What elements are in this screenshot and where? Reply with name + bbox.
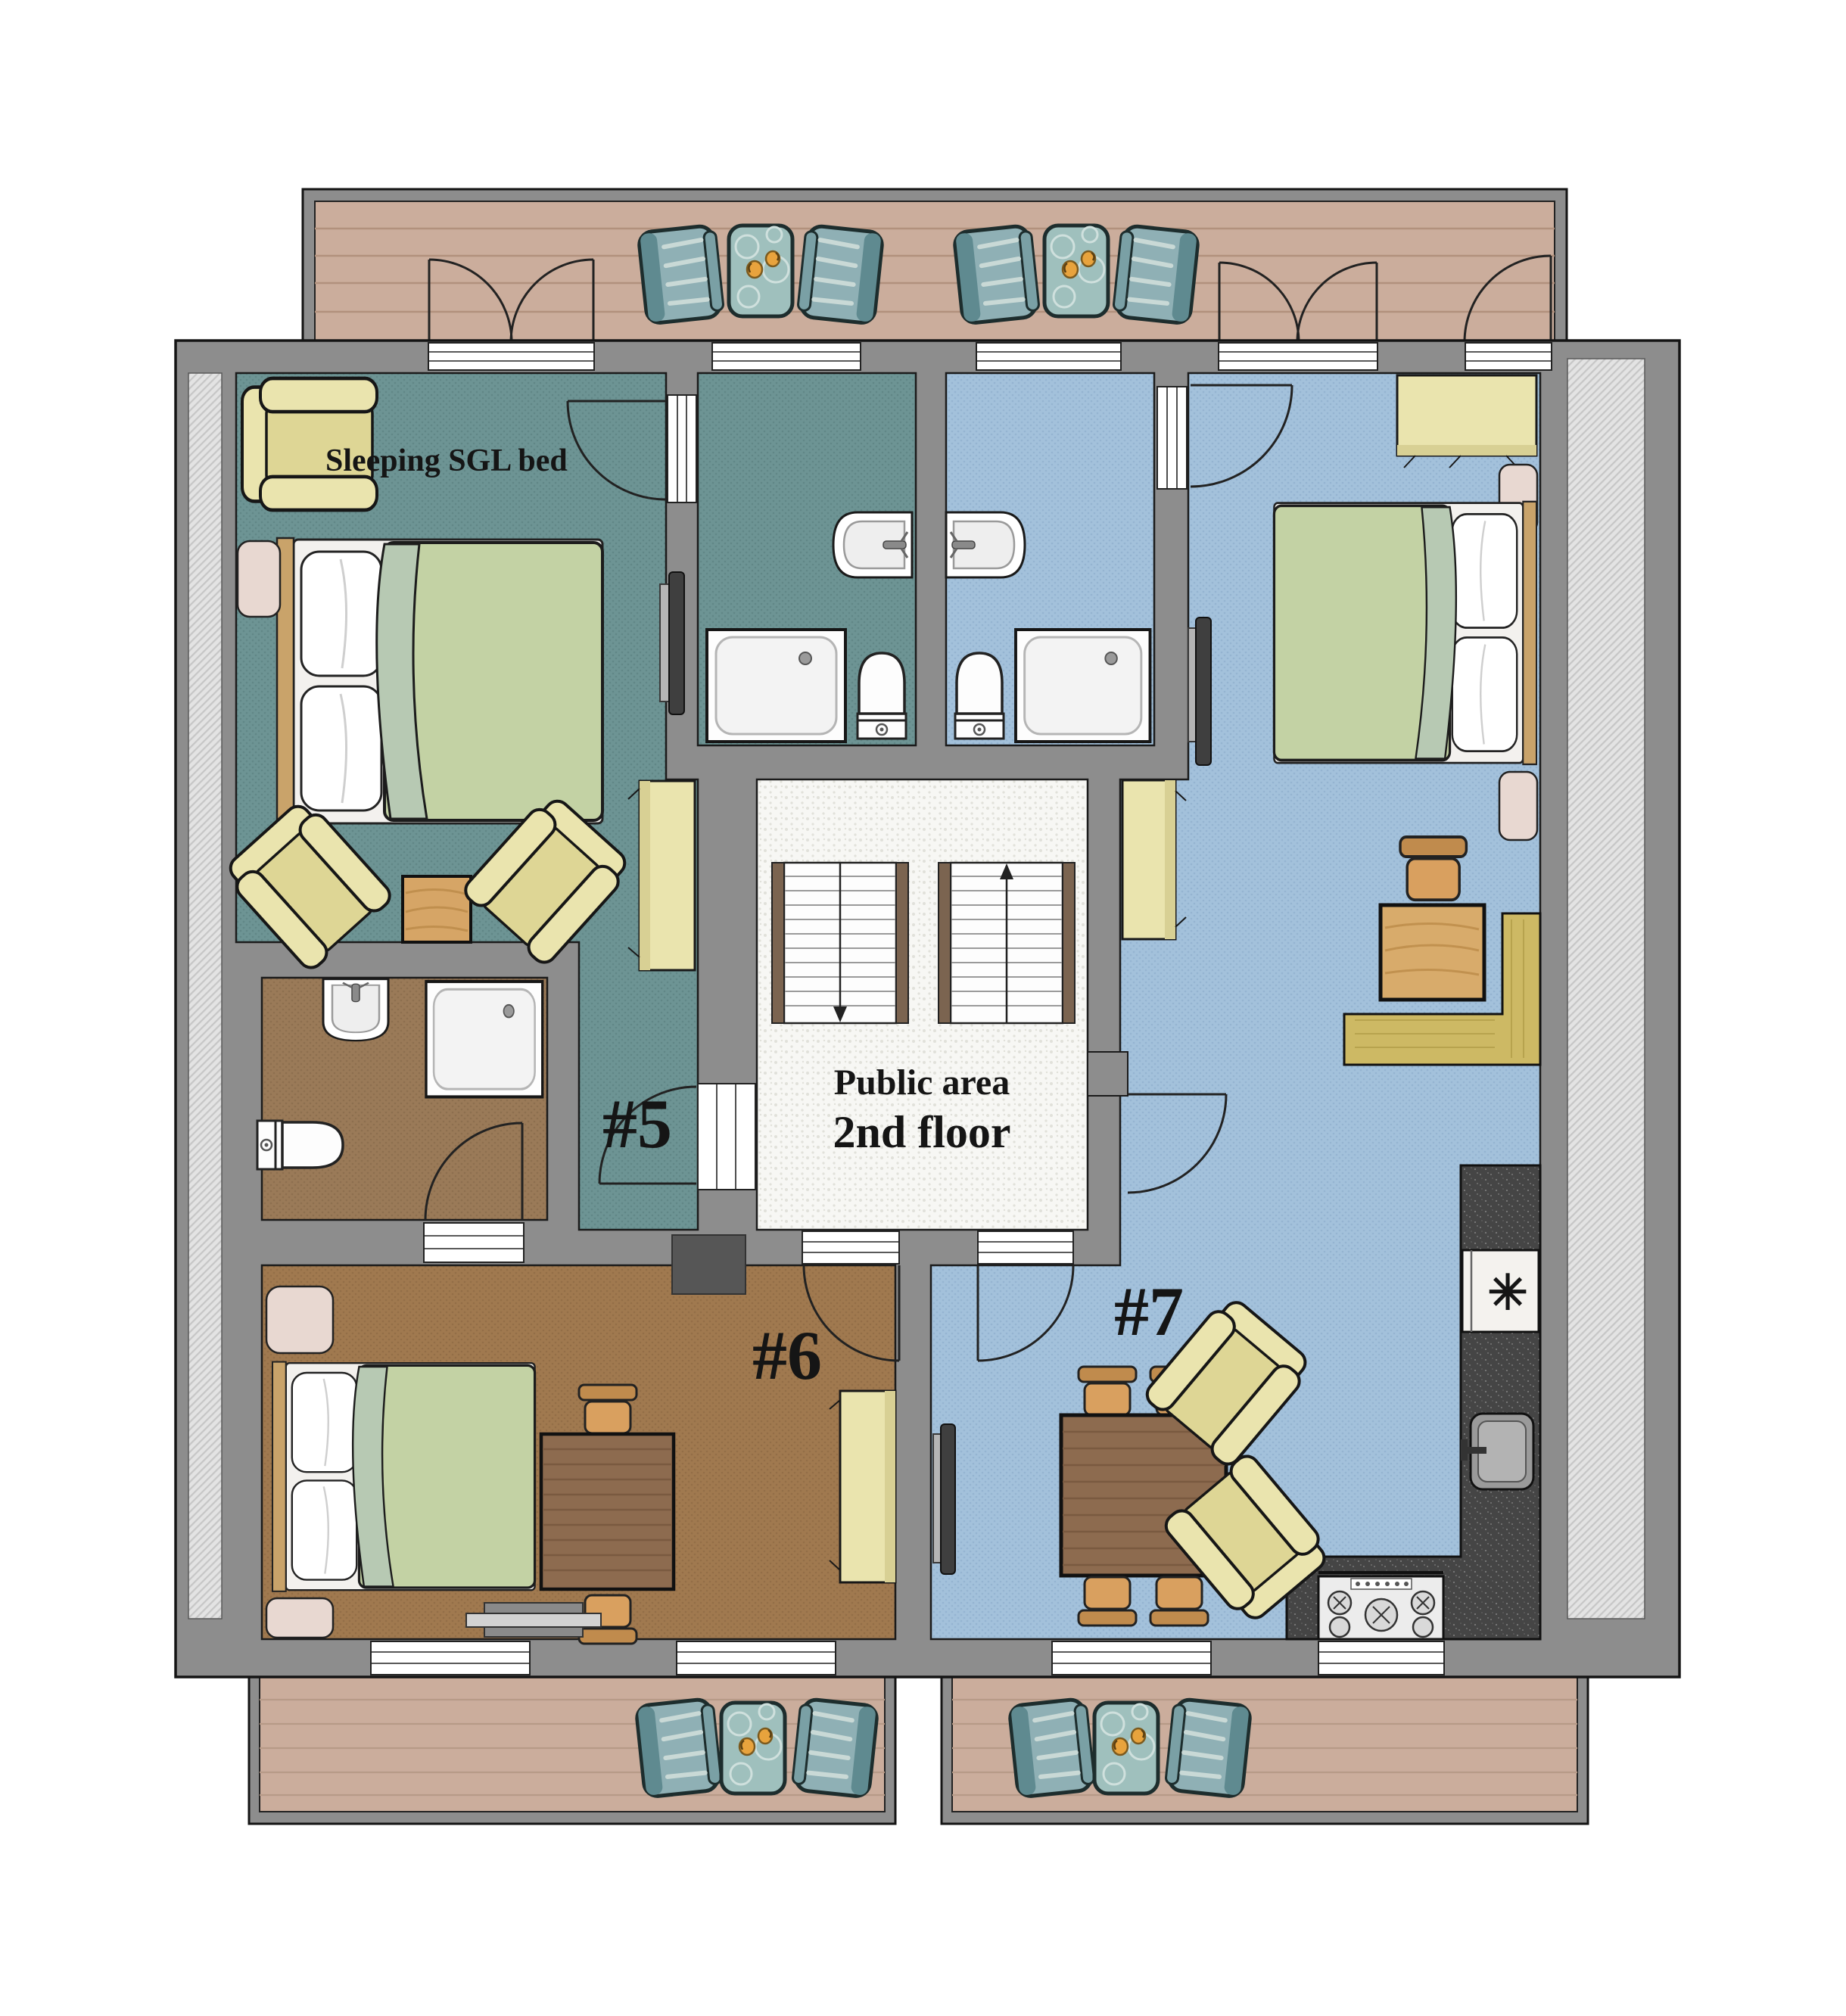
door-threshold-room5-bathroom: [668, 395, 696, 502]
stove: [1318, 1573, 1443, 1639]
kitchen-sink: [1461, 1414, 1533, 1489]
room7-chair-1: [1079, 1367, 1136, 1415]
door-threshold-room7-balcony-south: [1052, 1641, 1211, 1675]
door-threshold-room6-balcony: [677, 1641, 836, 1675]
room5-bed: [277, 538, 602, 825]
room6-wardrobe: [830, 1391, 895, 1582]
bathroom5-toilet: [858, 653, 906, 739]
door-threshold-room7-entry: [978, 1231, 1073, 1264]
balcony-top: [303, 189, 1567, 342]
room7-chair-3: [1079, 1577, 1136, 1626]
door-threshold-room7-balcony: [1219, 343, 1377, 370]
public-area-floor-label: 2nd floor: [833, 1107, 1010, 1157]
bathroom6-toilet: [257, 1121, 343, 1169]
room7-desk-chair: [1400, 837, 1466, 900]
bathroom7-toilet: [955, 653, 1004, 739]
room6-nightstand-bottom: [266, 1598, 333, 1638]
room7-cabinet: [1122, 780, 1186, 939]
fridge: ✳: [1462, 1250, 1539, 1332]
public-area-title: Public area: [834, 1062, 1010, 1103]
door-threshold-room5-balcony: [428, 343, 594, 370]
room7-bed: [1274, 502, 1536, 764]
door-threshold-bedroom7-balcony-single: [1465, 343, 1552, 370]
freezer-icon: ✳: [1487, 1266, 1528, 1320]
room6-label: #6: [752, 1317, 822, 1394]
room6-table: [541, 1434, 674, 1589]
window-bathroom5: [712, 343, 861, 370]
window-room6: [371, 1641, 530, 1675]
bathroom5-sink: [833, 512, 912, 577]
bathroom7-sink: [946, 512, 1025, 577]
balcony-bottom-right-seating: [1009, 1698, 1251, 1797]
door-threshold-room7-bathroom: [1157, 387, 1187, 489]
room7-wall-stub: [1088, 1052, 1128, 1096]
balcony-top-seating-left: [638, 225, 883, 324]
right-wall-hatch: [1567, 359, 1645, 1619]
room7-chair-4: [1150, 1577, 1208, 1626]
room6-tv-console: [466, 1603, 601, 1637]
room5-label: #5: [602, 1085, 672, 1162]
room7-desk: [1381, 905, 1484, 1000]
balcony-bottom-left: [249, 1675, 895, 1824]
balcony-bottom-right: [942, 1675, 1588, 1824]
left-wall-hatch: [188, 373, 222, 1619]
balcony-bottom-left-seating: [636, 1698, 878, 1797]
window-kitchen7: [1318, 1641, 1444, 1675]
room5-nightstand-top: [238, 541, 280, 617]
window-bathroom7: [976, 343, 1121, 370]
room6-nightstand-top: [266, 1286, 333, 1353]
room7-label: #7: [1114, 1273, 1184, 1350]
room7-living-tv: [933, 1424, 955, 1574]
room6-chair-top: [579, 1385, 637, 1433]
doormat: [672, 1235, 746, 1294]
room7-nightstand-bottom: [1499, 772, 1537, 840]
floor-plan-canvas: Sleeping SGL bed #5 Public area 2nd floo…: [0, 0, 1846, 2016]
room5-tv: [660, 572, 684, 714]
balcony-top-floor: [315, 201, 1555, 342]
bathroom6-shower: [426, 982, 543, 1097]
bathroom6-sink: [323, 979, 388, 1041]
door-threshold-room6-entry: [802, 1231, 899, 1264]
room7-dresser: [1397, 375, 1536, 468]
bathroom5-shower: [707, 630, 845, 742]
door-threshold-room6-bathroom: [424, 1223, 524, 1262]
balcony-top-seating-right: [954, 225, 1199, 324]
room6-bed: [272, 1362, 535, 1591]
room5-sleeping-note: Sleeping SGL bed: [325, 443, 568, 478]
door-threshold-room5-entry: [698, 1084, 755, 1190]
bathroom7-shower: [1016, 630, 1150, 742]
